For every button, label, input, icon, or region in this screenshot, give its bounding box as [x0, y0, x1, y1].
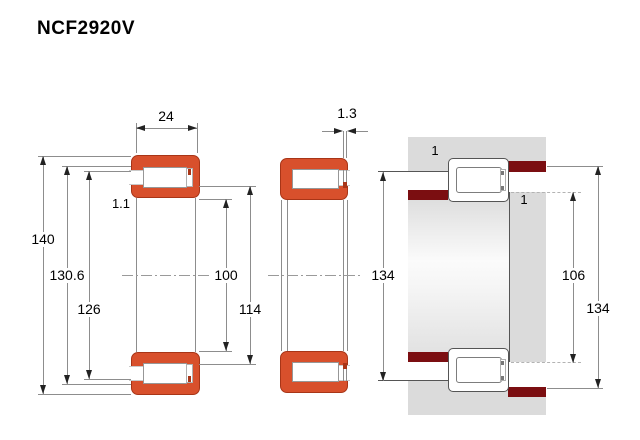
roller-bottom [292, 362, 339, 382]
lip-mark [501, 186, 504, 190]
arrow-up [223, 199, 229, 208]
arrow-down [40, 385, 46, 394]
roller-top [143, 167, 187, 188]
arrow-down [595, 379, 601, 388]
arrow-right [188, 125, 197, 131]
dim-line-134-right [598, 166, 599, 388]
relief-top-right [509, 172, 546, 192]
ext-line [62, 166, 131, 167]
shaft-surface-line-bottom [378, 380, 448, 381]
ext-line [343, 131, 344, 158]
lip-mark [501, 361, 504, 365]
arrow-down [223, 342, 229, 351]
arrow-up [247, 186, 253, 195]
lip-tick-bottom [188, 376, 191, 382]
arrow-up [64, 166, 70, 175]
ext-line [346, 131, 347, 158]
dim-fillet-housing: 1 [516, 193, 532, 207]
axis-centerline [122, 275, 210, 276]
ext-line [197, 123, 198, 153]
lip-tick-top [343, 182, 347, 188]
arrow-down [86, 370, 92, 379]
dim-line-s [356, 131, 368, 132]
ext-line [38, 394, 131, 395]
dim-raceway-f: 114 [234, 302, 266, 317]
lip-mark [501, 171, 504, 175]
roller-bottom [143, 363, 187, 384]
arrow-up [86, 171, 92, 180]
shaft-abutment-bar-top [408, 190, 448, 200]
ring-opening-bottom-left [129, 366, 143, 381]
bearing-drawing-canvas: NCF2920V 24 140 [0, 0, 640, 440]
dim-axial-s: 1.3 [333, 106, 361, 121]
arrow-down [380, 372, 386, 381]
lip-tick-top [188, 169, 191, 175]
lip-tick-bottom [343, 363, 347, 369]
dim-line-od [43, 156, 44, 394]
ext-line [199, 364, 256, 365]
arrow-down [247, 355, 253, 364]
ring-opening-top-left [129, 170, 143, 185]
axis-centerline [268, 275, 360, 276]
arrow-right [334, 128, 343, 134]
arrow-down [570, 354, 576, 363]
dim-raceway-e: 130.6 [45, 268, 89, 283]
ext-line [84, 379, 131, 380]
arrow-up [595, 166, 601, 175]
lip-mark [501, 376, 504, 380]
arrow-up [570, 192, 576, 201]
dim-flange-diameter: 126 [73, 302, 105, 317]
shaft-surface-line-top [378, 171, 448, 172]
shaft-abutment-bar-bottom [408, 352, 448, 362]
dim-outer-diameter: 140 [27, 232, 59, 247]
shaft-area [408, 200, 509, 352]
relief-top-left [408, 172, 448, 190]
ext-line [38, 156, 131, 157]
page-title: NCF2920V [37, 18, 135, 40]
dim-bore-diameter: 100 [210, 268, 242, 283]
mounted-roller-top [456, 167, 502, 193]
inner-ring-face-line [509, 192, 510, 362]
dim-line-flange [89, 171, 90, 379]
housing-abutment-bar-top [508, 161, 546, 172]
arrow-left [347, 128, 356, 134]
ext-line [62, 384, 131, 385]
arrow-left [136, 125, 145, 131]
dim-abutment-housing: 134 [582, 301, 614, 316]
mounted-roller-bottom [456, 357, 502, 383]
dim-width-b: 24 [152, 109, 180, 124]
relief-bottom-right [509, 362, 546, 387]
roller-top [292, 169, 339, 189]
ext-line [199, 351, 232, 352]
housing-abutment-bar-bottom [508, 387, 546, 397]
dim-chamfer-r: 1.1 [107, 197, 135, 211]
relief-bottom-left [408, 362, 448, 380]
dim-line-f [250, 186, 251, 364]
arrow-up [380, 172, 386, 181]
ext-line [547, 388, 603, 389]
arrow-up [40, 156, 46, 165]
dim-fillet-shaft: 1 [427, 144, 443, 158]
dim-line-s [322, 131, 334, 132]
dim-abutment-shaft: 106 [558, 268, 589, 283]
arrow-down [64, 375, 70, 384]
dim-abutment-left: 134 [367, 268, 399, 283]
